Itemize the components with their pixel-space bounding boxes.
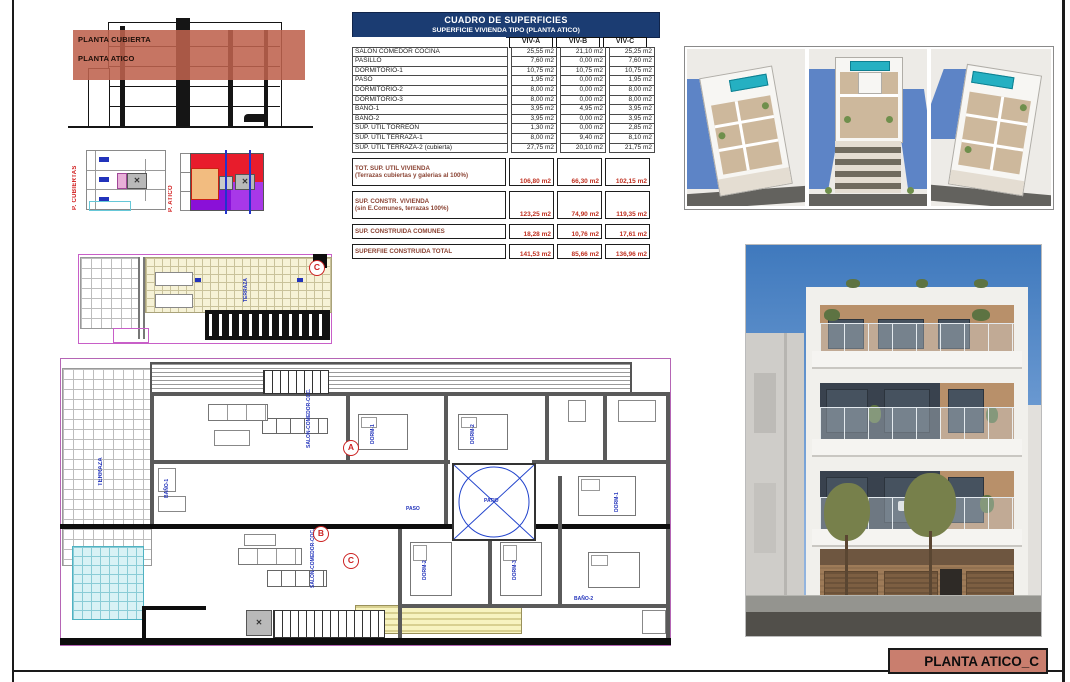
bed [500, 542, 542, 596]
shaft [642, 610, 666, 634]
terrace-hatched-top [150, 362, 632, 394]
summary-value: 18,28 m2 [509, 224, 554, 239]
bed [458, 414, 508, 450]
keyplan-atico: P. ATICO ✕ [166, 148, 268, 218]
row-value: 20,10 m2 [560, 143, 606, 154]
summary-value: 10,76 m2 [557, 224, 602, 239]
room-label: DORM-1 [614, 486, 620, 512]
roof-plant [974, 279, 988, 288]
keyplan-blue-line [225, 150, 227, 214]
render-plant [886, 116, 893, 123]
toilet [568, 400, 586, 422]
balcony-slab [812, 439, 1022, 455]
summary-value: 136,96 m2 [605, 244, 650, 259]
sheet-title: PLANTA ATICO_C [924, 654, 1039, 669]
summary-value: 141,53 m2 [509, 244, 554, 259]
bed [578, 476, 636, 516]
marker-c-roof: C [309, 260, 325, 276]
summary-value: 102,15 m2 [605, 158, 650, 186]
render-tree [825, 187, 832, 194]
bed [588, 552, 640, 588]
section-label-cubierta: PLANTA CUBIERTA [78, 35, 151, 44]
title-block: PLANTA ATICO_C [888, 648, 1048, 674]
summary-label: TOT. SUP. UTIL VIVIENDA(Terrazas cubiert… [352, 158, 506, 186]
summary-value: 85,66 m2 [557, 244, 602, 259]
balcony-slab [812, 351, 1022, 367]
terrace-grid-cyan [72, 546, 144, 620]
bath [618, 400, 656, 422]
keyplan-cubiertas: P. CUBIERTAS ✕ [70, 146, 166, 214]
table-subtitle: SUPERFICIE VIVIENDA TIPO (PLANTA ATICO) [353, 27, 659, 34]
sofa [208, 404, 268, 421]
render-street [809, 194, 927, 206]
atico-floor-plan: TERRAZA ✕ [58, 356, 674, 648]
keyplan-stair-core: ✕ [127, 173, 147, 189]
rooftop-pool [850, 61, 890, 71]
bed [410, 542, 452, 596]
render-tree [907, 187, 914, 194]
roof-plant [916, 279, 928, 288]
room-label: SALON-COMEDOR-COC. [306, 402, 312, 448]
summary-value: 123,25 m2 [509, 191, 554, 219]
summary-value: 74,90 m2 [557, 191, 602, 219]
street-tree [904, 473, 956, 537]
roof-blue-mark [195, 278, 201, 282]
keyplan-blue-line [249, 150, 251, 214]
rooftop-pool [729, 74, 769, 92]
section-floor-line [108, 86, 280, 87]
bed [358, 414, 408, 450]
terrace-label: TERRAZA [98, 436, 104, 486]
row-label: SUP. ÚTIL TERRAZA-2 (cubierta) [352, 143, 508, 154]
sofa [238, 548, 302, 565]
room-label: BAÑO-2 [574, 596, 593, 602]
render-facade [835, 141, 901, 193]
terrace-grid-left [62, 368, 152, 566]
stairs-top [263, 370, 329, 394]
aerial-render-1 [687, 49, 805, 206]
roof-plan-label: TERRAZA [243, 266, 249, 302]
frame-left-line [12, 0, 14, 682]
patio-lightwell: PATIO [452, 463, 536, 541]
summary-label: SUP. CONSTRUIDA COMUNES [352, 224, 506, 239]
section-floor-line [108, 106, 280, 107]
table-header: CUADRO DE SUPERFICIES SUPERFICIE VIVIEND… [352, 12, 660, 38]
elevator: ✕ [246, 610, 272, 636]
summary-value: 106,80 m2 [509, 158, 554, 186]
roof-terrace-plan: TERRAZA C [75, 248, 337, 348]
section-car [244, 114, 268, 122]
keyplan-stair-core: ✕ [235, 174, 255, 190]
render-plant [844, 116, 851, 123]
rooftop-pool [971, 71, 1014, 89]
sun-lounger [155, 294, 193, 308]
kitchen-counter [267, 570, 327, 587]
keyplan-mark [99, 177, 109, 182]
keyplan-cyan-outline [89, 201, 131, 211]
aerial-render-2 [809, 49, 927, 206]
marker-a: A [343, 440, 359, 456]
neighbor-building-left [746, 333, 804, 636]
building-section-diagram: PLANTA CUBIERTA PLANTA ATICO [68, 8, 313, 138]
stairs-bottom [273, 610, 385, 638]
roof-plant [846, 279, 860, 288]
aerial-renders-strip [684, 46, 1054, 210]
table-summary: TOT. SUP. UTIL VIVIENDA(Terrazas cubiert… [352, 158, 660, 259]
atico-terrace-band [820, 305, 1014, 351]
roof-stairs [205, 310, 330, 340]
summary-value: 119,35 m2 [605, 191, 650, 219]
summary-row: TOT. SUP. UTIL VIVIENDA(Terrazas cubiert… [352, 158, 660, 186]
marker-c: C [343, 553, 359, 569]
summary-label: SUPERFIIE CONSTRUIDA TOTAL [352, 244, 506, 259]
table-rows: SALON COMEDOR COCINA25,55 m221,10 m225,2… [352, 47, 660, 154]
patio-label: PATIO [484, 498, 499, 504]
sun-lounger [155, 272, 193, 286]
room-label: BAÑO-1 [164, 472, 170, 498]
keyplan-cubiertas-plan: ✕ [86, 150, 166, 210]
keyplan-atico-plan: ✕ [190, 153, 264, 211]
section-label-atico: PLANTA ATICO [78, 54, 135, 63]
street-tree-trunk [929, 531, 932, 601]
coffee-table [214, 430, 250, 446]
roof-tiled-terrace-left [80, 257, 140, 329]
keyplan-atico-label: P. ATICO [168, 156, 174, 212]
street-tree-trunk [845, 535, 848, 601]
frame-right-line [1062, 0, 1065, 682]
summary-label: SUP. CONSTR. VIVIENDA(sin E.Comunes, ter… [352, 191, 506, 219]
room-label: DORM-2 [470, 418, 476, 444]
summary-row: SUP. CONSTR. VIVIENDA(sin E.Comunes, ter… [352, 191, 660, 219]
room-label: DORM-3 [512, 554, 518, 580]
summary-value: 66,30 m2 [557, 158, 602, 186]
marker-b: B [313, 526, 329, 542]
keyplan-cubiertas-label: P. CUBIERTAS [72, 152, 78, 210]
render-building [835, 57, 903, 143]
street-tree [824, 483, 870, 541]
keyplan-zone-tan [191, 168, 219, 200]
room-label: PASO [406, 506, 420, 512]
kitchen-counter [262, 418, 328, 434]
row-value: 27,75 m2 [511, 143, 557, 154]
sidewalk [746, 595, 1041, 613]
facade-render [745, 244, 1042, 637]
roof-blue-mark [297, 278, 303, 282]
room-label: DORM-1 [370, 418, 376, 444]
road [746, 612, 1041, 636]
facade-main-building [806, 287, 1028, 636]
aerial-render-3 [931, 49, 1051, 206]
sink [158, 496, 186, 512]
surfaces-table: CUADRO DE SUPERFICIES SUPERFICIE VIVIEND… [352, 12, 660, 259]
drawing-sheet: PLANTA CUBIERTA PLANTA ATICO P. CUBIERTA… [0, 0, 1070, 682]
table-row: SUP. ÚTIL TERRAZA-2 (cubierta)27,75 m220… [352, 143, 660, 154]
coffee-table [244, 534, 276, 546]
row-value: 21,75 m2 [609, 143, 655, 154]
roof-plan-notch [113, 328, 149, 343]
summary-value: 17,61 m2 [605, 224, 650, 239]
room-label: DORM-2 [422, 554, 428, 580]
table-title: CUADRO DE SUPERFICIES [353, 15, 659, 25]
keyplan-mark [117, 173, 127, 189]
keyplan-mark [99, 157, 109, 162]
summary-row: SUPERFIIE CONSTRUIDA TOTAL141,53 m285,66… [352, 244, 660, 259]
summary-row: SUP. CONSTRUIDA COMUNES18,28 m210,76 m21… [352, 224, 660, 239]
terrace-plant [824, 309, 840, 321]
balcony-band-2 [820, 383, 1014, 439]
section-ground-line [68, 126, 313, 128]
terrace-plant [972, 309, 990, 321]
room-label: SALON-COMEDOR-COC. [310, 542, 316, 588]
